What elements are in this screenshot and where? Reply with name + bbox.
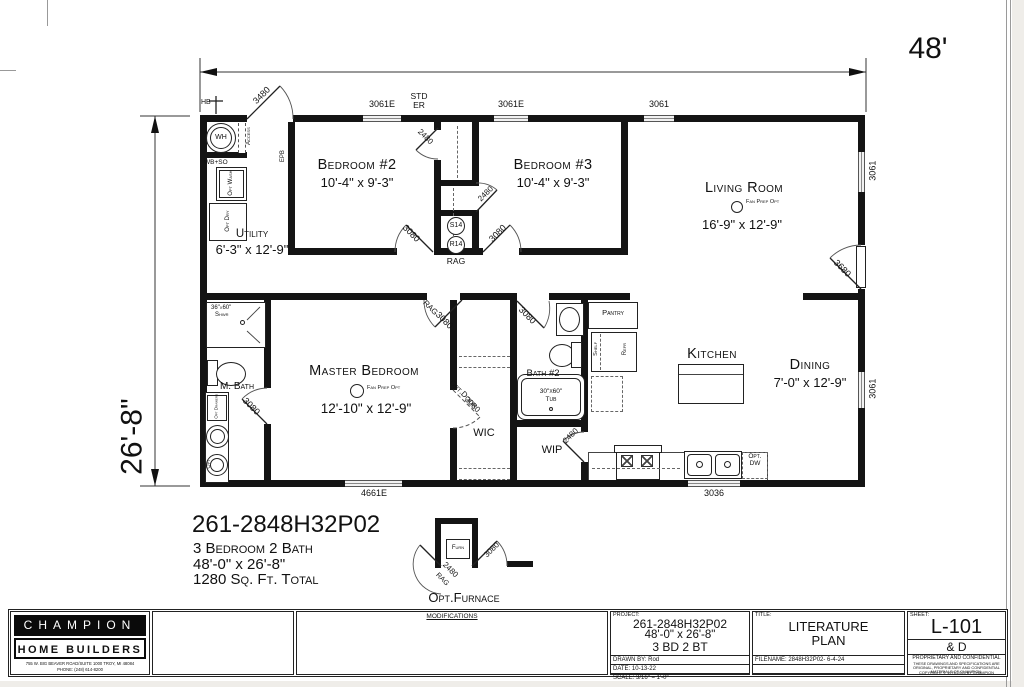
sheet-cell: SHEET: L-101 & D PROPRIETARY AND CONFIDE… [907, 611, 1006, 675]
sink-drain [724, 461, 731, 468]
fan-prep-icon [350, 384, 364, 398]
tub-label: Tub [527, 397, 575, 404]
wb-so-label: WB+SO [204, 160, 228, 167]
room-name: Bath #2 [518, 369, 568, 379]
brand-subname: HOME BUILDERS [18, 644, 143, 656]
door-label: 3080 [235, 391, 267, 423]
filename: FILENAME: 2848H32P02- 6-4-24 [755, 657, 844, 663]
opt-counter [591, 376, 623, 412]
refr-shelf-line [600, 334, 602, 370]
sheet-number: L-101 [908, 617, 1005, 638]
room-size: 10'-4" x 9'-3" [483, 176, 623, 190]
wall [200, 480, 865, 487]
brand-address: 755 W. BIG BEAVER ROAD/SUITE 1000 TROY, … [13, 662, 147, 666]
sink-drain [696, 461, 703, 468]
title-cell: TITLE: LITERATURE PLAN FILENAME: 2848H32… [752, 611, 905, 675]
wall [434, 122, 441, 130]
scale: SCALE: 3/16" = 1'-0" [613, 675, 669, 681]
floor-plan-sheet: 48' 26'-8" 3061E 3061E 3061 STD ER 3061 … [0, 0, 1024, 687]
closet-rod [457, 126, 459, 178]
opt-furnace-label: Opt.Furnace [414, 591, 514, 605]
drawing-title: LITERATURE [753, 620, 904, 634]
fan-prep-label: Fan Prep Opt [746, 200, 779, 206]
window-label: 4661E [350, 489, 398, 498]
wall [288, 248, 397, 255]
wall [472, 122, 479, 186]
wall [450, 428, 457, 487]
dim-arrows [151, 68, 866, 486]
brand-name: CHAMPION [24, 618, 137, 632]
wall [434, 180, 479, 186]
furnace-label: Furn [446, 545, 470, 551]
page-border-fragment [47, 0, 48, 26]
champion-logo: CHAMPION [14, 615, 146, 636]
project-config: 3 BD 2 BT [611, 641, 749, 653]
wall [519, 248, 628, 255]
spare-cell [152, 611, 294, 675]
row-divider [753, 673, 904, 674]
room-name: Living Room [674, 181, 814, 196]
room-name: Bedroom #3 [483, 158, 623, 173]
window [494, 115, 528, 122]
room-size: 6'-3" x 12'-9" [202, 243, 302, 257]
drawn-by: DRAWN BY: Rod [613, 657, 659, 663]
access-panel [238, 123, 246, 153]
window-label: 3061 [868, 156, 877, 186]
room-name: Master Bedroom [284, 364, 444, 379]
window-label: 3061 [642, 100, 676, 109]
window-label: 3036 [690, 489, 738, 498]
door-label: 3480 [246, 80, 278, 112]
toilet-tank [571, 342, 582, 368]
window [644, 115, 674, 122]
wall [434, 210, 479, 216]
copyright: COPYRIGHT © 1976-2024 BY CHAMPION [908, 671, 1005, 675]
row-divider [611, 655, 749, 656]
modifications-header: MODIFICATIONS [297, 614, 607, 621]
page-margin-bottom [0, 681, 1024, 687]
s14-label: S14 [447, 222, 465, 229]
window-label: 3061E [363, 100, 401, 109]
room-size: 16'-9" x 12'-9" [672, 218, 812, 232]
logo-cell: CHAMPION HOME BUILDERS 755 W. BIG BEAVER… [10, 611, 150, 675]
room-size: 7'-0" x 12'-9" [760, 376, 860, 390]
drawing-title: PLAN [753, 634, 904, 648]
project-cell: PROJECT: 261-2848H32P02 48'-0" x 26'-8" … [610, 611, 750, 675]
counter-dash [592, 468, 680, 470]
access-label: Access [246, 120, 252, 152]
row-divider [611, 673, 749, 674]
room-name: WIP [532, 445, 572, 456]
tub-size-label: 30"x60" [527, 389, 575, 396]
date: DATE: 10-13-22 [613, 666, 656, 672]
window-label: 3061 [868, 374, 877, 404]
room-name: Kitchen [662, 347, 762, 362]
window [345, 480, 402, 487]
wall [581, 462, 588, 487]
page-border-right [1006, 0, 1011, 687]
marriage-wall [460, 293, 517, 300]
sheet-suffix: & D [908, 641, 1005, 653]
window [858, 152, 865, 192]
row-divider [611, 664, 749, 665]
r14-label: R14 [447, 241, 465, 248]
tub-drain [549, 407, 553, 411]
fan-prep-icon [731, 201, 743, 213]
room-size: 10'-4" x 9'-3" [287, 176, 427, 190]
wall [434, 160, 441, 255]
brand-phone: PHONE: (248) 614-8200 [13, 668, 147, 672]
burner-icon [621, 455, 633, 467]
model-number: 261-2848H32P02 [192, 513, 380, 538]
opt-dw-label: DW [744, 461, 766, 468]
door-label: 3080 [476, 534, 507, 565]
shower-size-label: 36"x60" [211, 305, 231, 311]
rag-label: RAG [442, 257, 470, 266]
page-margin-right [1012, 0, 1024, 687]
room-size: 12'-10" x 12'-9" [286, 402, 446, 416]
overall-height-dim: 26'-8" [116, 391, 147, 483]
wall [264, 424, 271, 487]
wall [200, 115, 865, 122]
lavatory-sink [559, 307, 580, 332]
door-label: 3080 [395, 218, 427, 250]
sink-inner [210, 429, 225, 444]
summary-config: 3 Bedroom 2 Bath [193, 541, 313, 557]
window [363, 115, 401, 122]
modifications-cell: MODIFICATIONS [296, 611, 608, 675]
overall-width-dim: 48' [893, 33, 963, 64]
hose-bib-icon [209, 96, 223, 114]
refr-label: Refr [622, 333, 628, 365]
egress-label: ER [404, 101, 434, 110]
marriage-wall [200, 293, 427, 300]
row-divider [753, 655, 904, 656]
room-name: WIC [464, 428, 504, 439]
epb-label: EPB [280, 144, 286, 168]
room-name: Utility [202, 229, 302, 241]
furnace-wall [435, 518, 478, 524]
window-label: 3061E [492, 100, 530, 109]
window [688, 480, 740, 487]
door-label: 3080 [482, 218, 514, 250]
pantry-label: Pantry [588, 309, 638, 317]
water-heater-label: WH [206, 134, 236, 141]
door-label: 3680 [826, 253, 858, 285]
title-label: TITLE: [755, 613, 772, 619]
home-builders-logo: HOME BUILDERS [14, 638, 146, 659]
furnace-wall [507, 561, 533, 567]
page-border-fragment [0, 70, 16, 71]
room-name: Bedroom #2 [287, 158, 427, 173]
island-edge [679, 374, 743, 375]
kitchen-island [678, 364, 744, 404]
wic-shelf [459, 468, 510, 480]
door-label: 3080 [456, 389, 487, 420]
front-door-opening [247, 115, 293, 122]
row-divider [753, 664, 904, 665]
marriage-wall [549, 293, 630, 300]
marriage-wall [803, 293, 865, 300]
opt-washer-label: Opt Wash [228, 163, 234, 203]
room-name: M. Bath [207, 382, 267, 392]
door-slab [856, 246, 866, 288]
hose-bib-label: HB [201, 99, 211, 106]
shower-label: Shwr [215, 312, 229, 318]
shelf-label: Shelf [594, 333, 600, 365]
wall [510, 300, 517, 487]
burner-icon [641, 455, 653, 467]
summary-area: 1280 Sq. Ft. Total [193, 572, 318, 588]
room-name: Dining [760, 358, 860, 373]
opt-sink-label: Opt [207, 453, 213, 475]
fan-prep-label: Fan Prep Opt [367, 386, 400, 392]
shower-drain [240, 320, 245, 325]
wic-shelf [459, 356, 510, 368]
